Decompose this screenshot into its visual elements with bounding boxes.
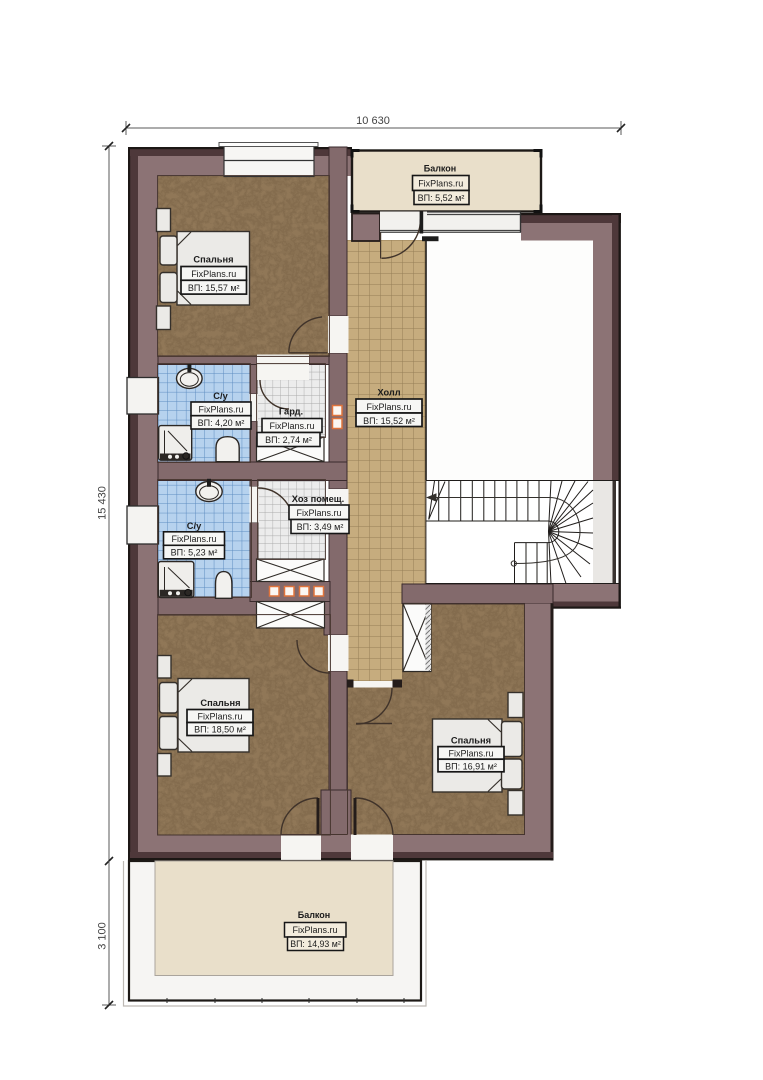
svg-text:FixPlans.ru: FixPlans.ru xyxy=(171,534,216,544)
svg-text:FixPlans.ru: FixPlans.ru xyxy=(197,712,242,722)
svg-text:Спальня: Спальня xyxy=(193,255,233,265)
svg-text:ВП: 18,50 м²: ВП: 18,50 м² xyxy=(194,725,246,735)
svg-text:ВП: 2,74 м²: ВП: 2,74 м² xyxy=(265,435,312,445)
svg-text:FixPlans.ru: FixPlans.ru xyxy=(296,508,341,518)
svg-text:ВП: 15,57 м²: ВП: 15,57 м² xyxy=(188,283,240,293)
svg-text:Спальня: Спальня xyxy=(451,736,491,746)
svg-text:FixPlans.ru: FixPlans.ru xyxy=(448,749,493,759)
svg-text:FixPlans.ru: FixPlans.ru xyxy=(191,269,236,279)
svg-text:FixPlans.ru: FixPlans.ru xyxy=(269,421,314,431)
svg-text:FixPlans.ru: FixPlans.ru xyxy=(418,179,463,189)
svg-text:ВП: 14,93 м²: ВП: 14,93 м² xyxy=(290,939,341,949)
svg-text:ВП: 15,52 м²: ВП: 15,52 м² xyxy=(363,416,415,426)
svg-text:Холл: Холл xyxy=(377,388,400,398)
svg-text:FixPlans.ru: FixPlans.ru xyxy=(366,402,411,412)
svg-text:ВП: 16,91 м²: ВП: 16,91 м² xyxy=(445,761,497,771)
svg-text:С/у: С/у xyxy=(213,391,228,401)
svg-text:Балкон: Балкон xyxy=(424,164,457,174)
svg-text:3 100: 3 100 xyxy=(97,922,109,950)
svg-text:FixPlans.ru: FixPlans.ru xyxy=(198,404,243,414)
svg-text:ВП: 4,20 м²: ВП: 4,20 м² xyxy=(198,418,245,428)
svg-text:Гард.: Гард. xyxy=(279,407,303,417)
svg-text:FixPlans.ru: FixPlans.ru xyxy=(292,925,337,935)
svg-text:ВП: 3,49 м²: ВП: 3,49 м² xyxy=(297,522,344,532)
svg-text:Хоз помещ.: Хоз помещ. xyxy=(292,494,345,504)
svg-text:Балкон: Балкон xyxy=(298,910,331,920)
svg-text:ВП: 5,23 м²: ВП: 5,23 м² xyxy=(171,548,218,558)
svg-text:С/у: С/у xyxy=(187,521,202,531)
svg-text:ВП: 5,52 м²: ВП: 5,52 м² xyxy=(418,193,465,203)
svg-text:Спальня: Спальня xyxy=(200,698,240,708)
svg-text:10 630: 10 630 xyxy=(356,115,390,127)
svg-text:15 430: 15 430 xyxy=(97,486,109,520)
